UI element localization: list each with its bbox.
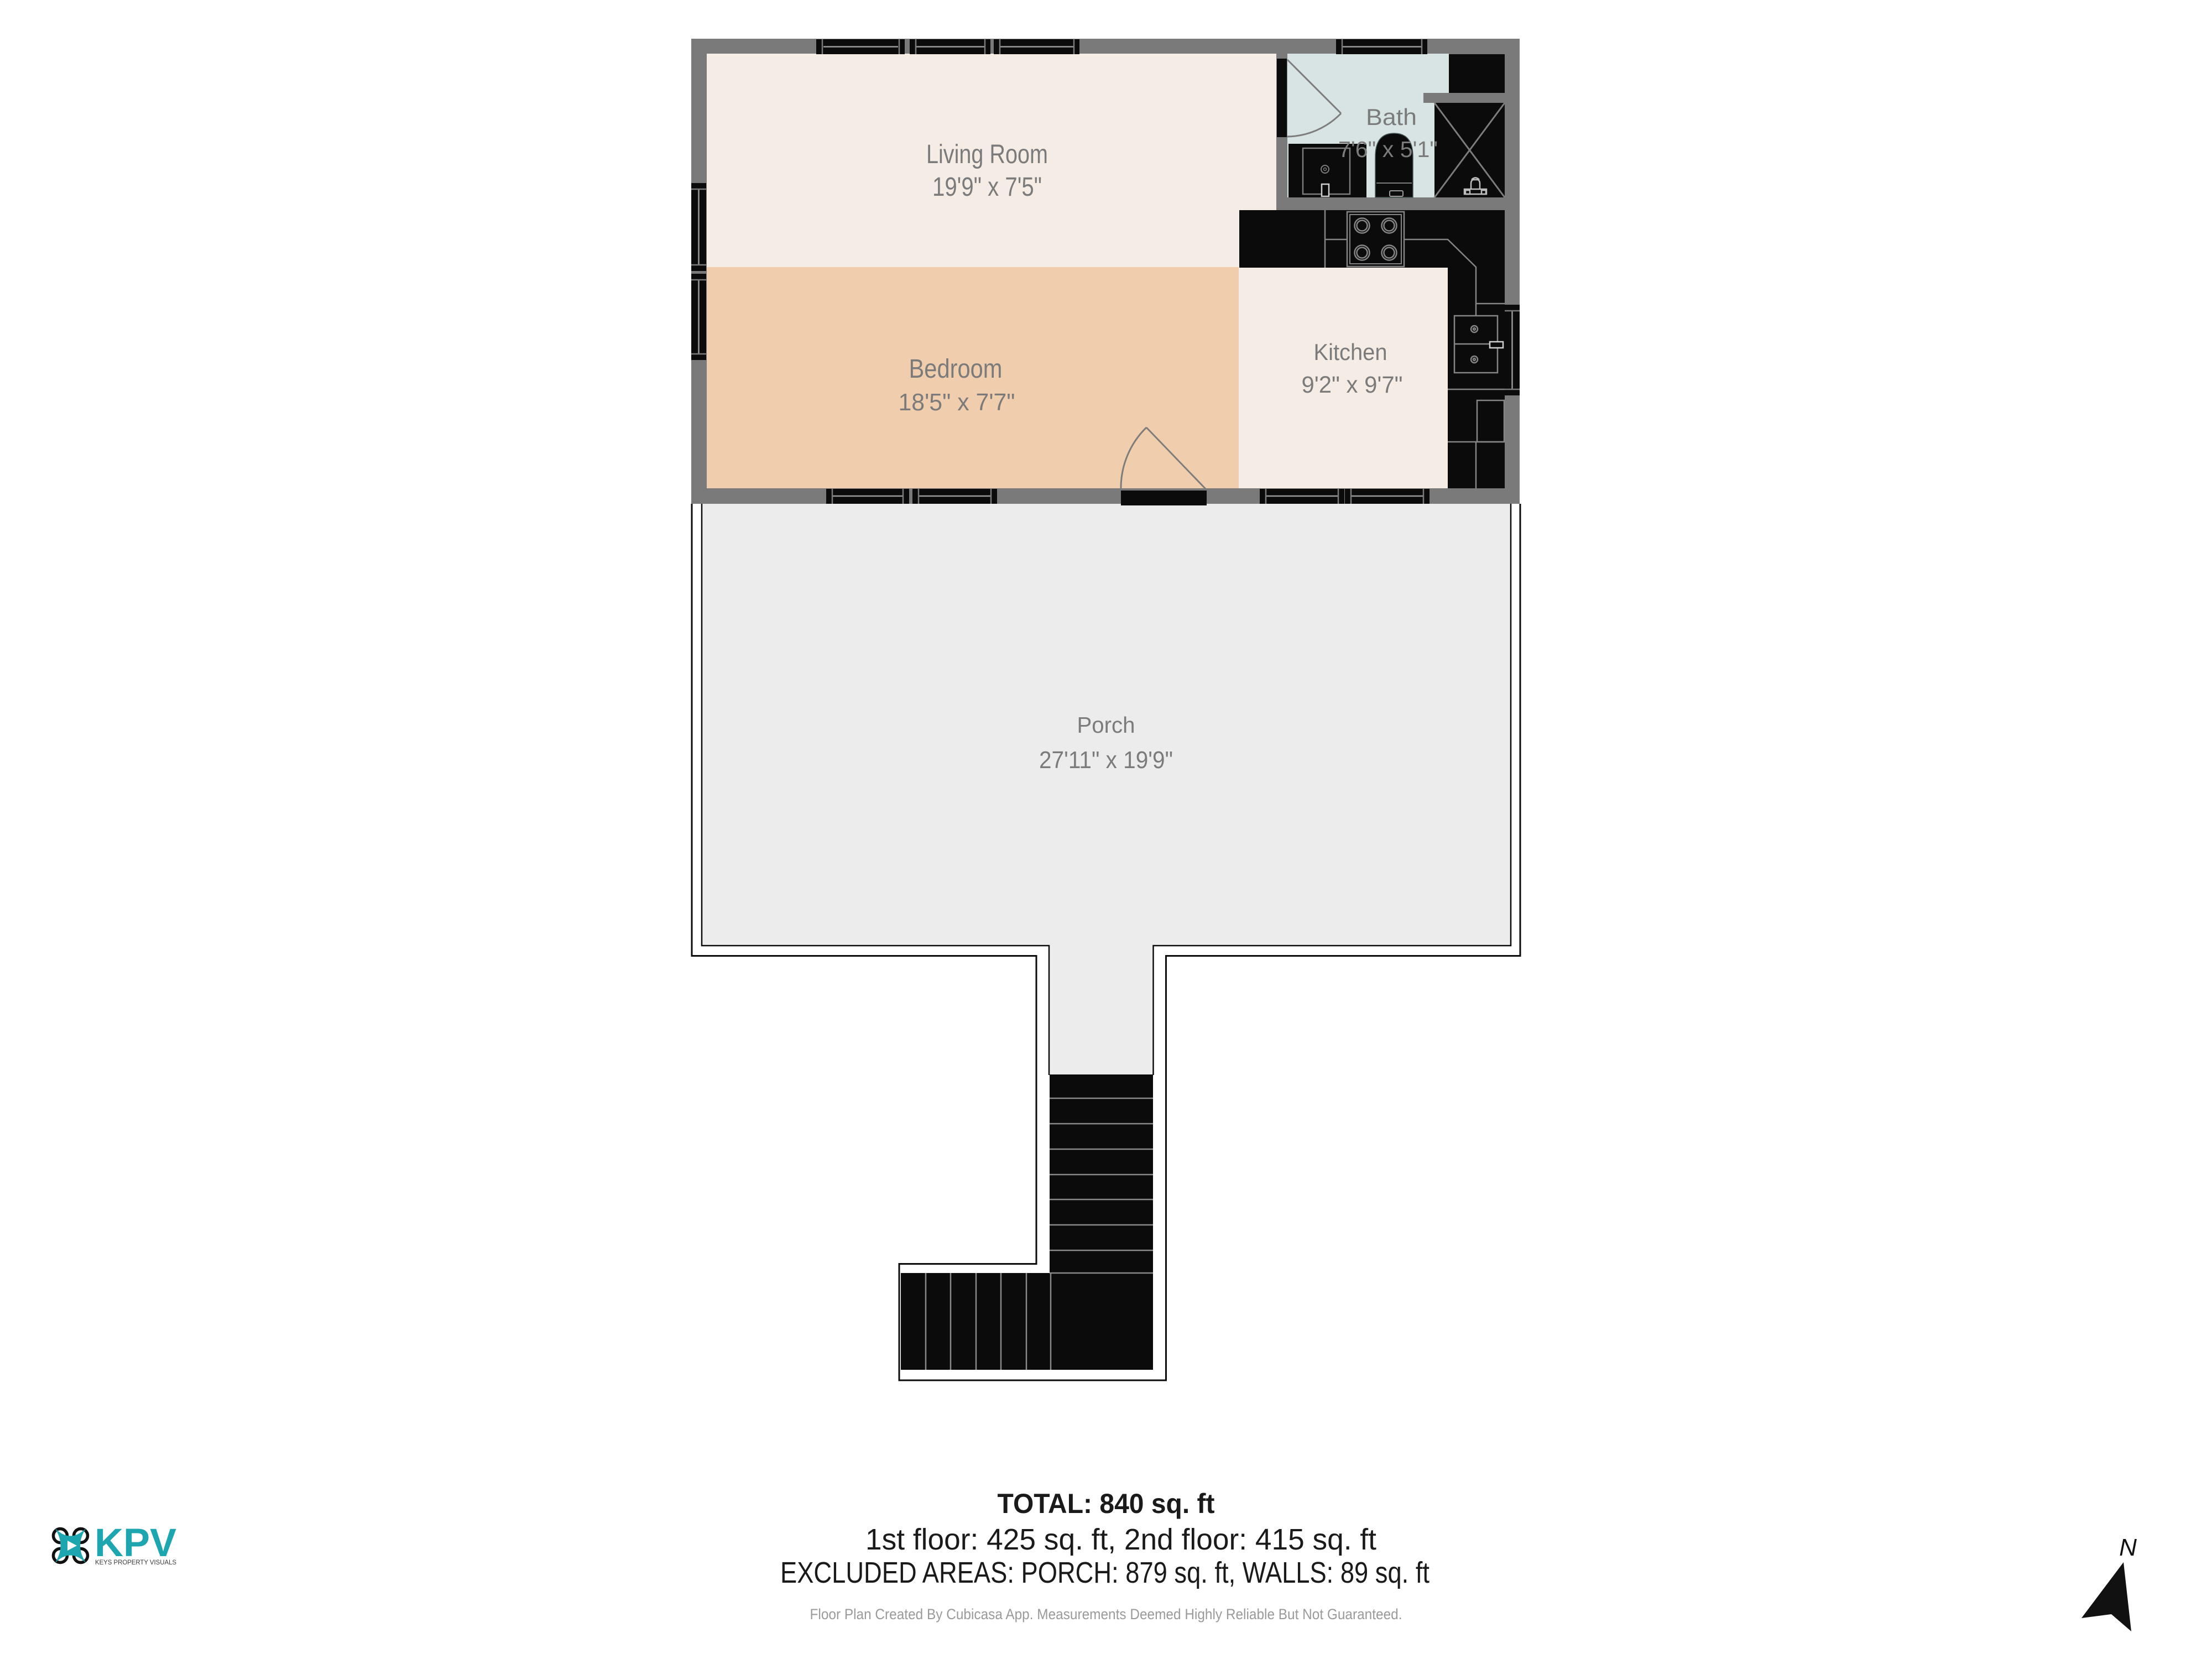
- svg-text:27'11" x 19'9": 27'11" x 19'9": [1039, 747, 1173, 774]
- svg-text:Bath: Bath: [1366, 104, 1417, 130]
- svg-text:N: N: [2119, 1534, 2137, 1561]
- svg-text:EXCLUDED AREAS: PORCH: 879 sq.: EXCLUDED AREAS: PORCH: 879 sq. ft, WALLS…: [780, 1556, 1430, 1589]
- svg-text:TOTAL: 840 sq. ft: TOTAL: 840 sq. ft: [998, 1488, 1215, 1519]
- svg-text:9'2" x 9'7": 9'2" x 9'7": [1302, 372, 1403, 398]
- svg-text:18'5" x 7'7": 18'5" x 7'7": [899, 389, 1015, 416]
- svg-text:1st floor: 425 sq. ft, 2nd flo: 1st floor: 425 sq. ft, 2nd floor: 415 sq…: [865, 1523, 1376, 1556]
- svg-text:19'9" x 7'5": 19'9" x 7'5": [932, 173, 1042, 202]
- svg-text:Bedroom: Bedroom: [909, 354, 1003, 384]
- svg-text:Floor Plan Created By Cubicasa: Floor Plan Created By Cubicasa App. Meas…: [810, 1606, 1402, 1623]
- svg-text:7'6" x 5'1": 7'6" x 5'1": [1338, 137, 1438, 162]
- svg-text:KPV: KPV: [95, 1521, 176, 1565]
- svg-text:Porch: Porch: [1077, 712, 1135, 738]
- svg-text:Living Room: Living Room: [926, 140, 1048, 169]
- svg-text:Kitchen: Kitchen: [1314, 339, 1387, 365]
- svg-text:KEYS PROPERTY VISUALS: KEYS PROPERTY VISUALS: [95, 1559, 176, 1566]
